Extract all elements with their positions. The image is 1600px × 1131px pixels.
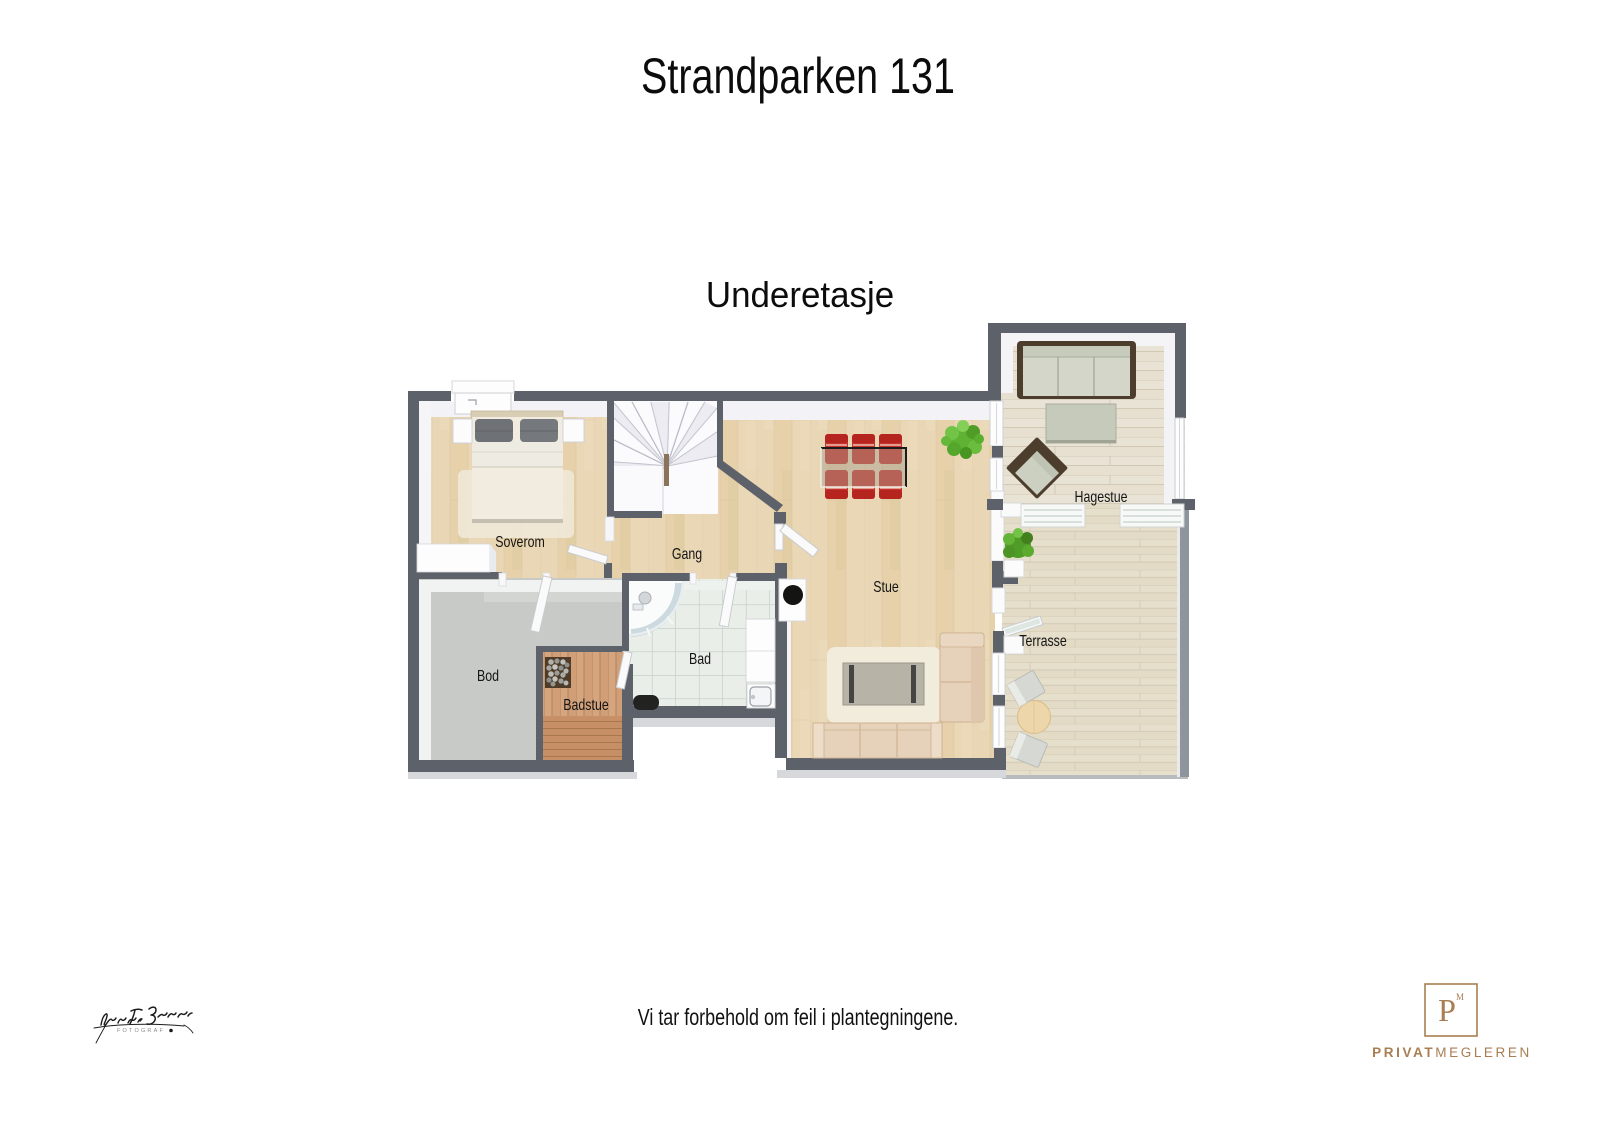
svg-text:Stue: Stue <box>873 578 899 596</box>
svg-text:Soverom: Soverom <box>495 533 545 551</box>
svg-text:M: M <box>1456 992 1464 1002</box>
svg-text:PRIVATMEGLEREN: PRIVATMEGLEREN <box>1372 1045 1532 1060</box>
svg-text:FOTOGRAF: FOTOGRAF <box>117 1028 165 1034</box>
svg-text:Vi tar forbehold om feil i pla: Vi tar forbehold om feil i plantegningen… <box>638 1005 959 1031</box>
svg-text:Hagestue: Hagestue <box>1074 488 1127 506</box>
svg-text:Underetasje: Underetasje <box>706 275 894 316</box>
svg-text:P: P <box>1438 992 1456 1028</box>
svg-text:Terrasse: Terrasse <box>1019 632 1067 650</box>
svg-text:Bad: Bad <box>689 650 711 668</box>
svg-text:Badstue: Badstue <box>563 696 609 714</box>
svg-text:Gang: Gang <box>672 545 702 563</box>
svg-text:Strandparken 131: Strandparken 131 <box>641 48 955 105</box>
svg-text:Bod: Bod <box>477 667 499 685</box>
